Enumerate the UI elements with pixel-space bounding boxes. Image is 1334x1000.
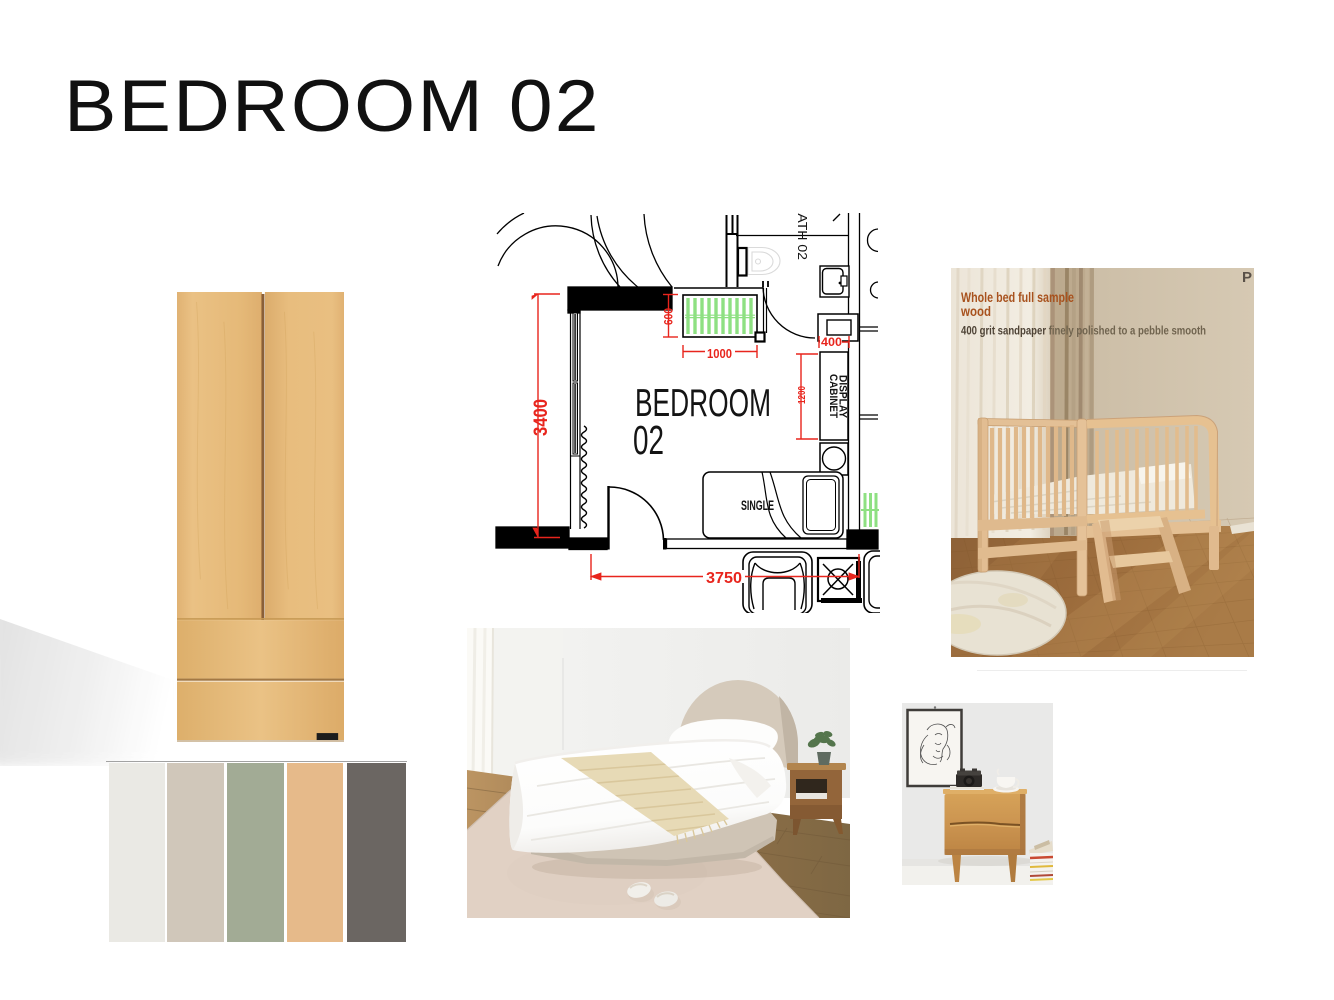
svg-text:SINGLE: SINGLE — [741, 498, 774, 513]
svg-text:wood: wood — [960, 303, 991, 319]
svg-text:400 grit sandpaper finely poli: 400 grit sandpaper finely polished to a … — [961, 326, 1206, 338]
svg-text:600: 600 — [662, 308, 676, 325]
svg-text:P: P — [1242, 269, 1252, 286]
svg-text:CABINET: CABINET — [827, 374, 839, 418]
svg-text:400: 400 — [821, 337, 842, 349]
svg-text:3400: 3400 — [531, 399, 552, 436]
svg-text:02: 02 — [633, 417, 664, 463]
svg-text:BATH 02: BATH 02 — [795, 213, 810, 260]
svg-text:1000: 1000 — [707, 346, 732, 361]
svg-text:3750: 3750 — [706, 570, 742, 587]
svg-text:1200: 1200 — [796, 386, 808, 404]
